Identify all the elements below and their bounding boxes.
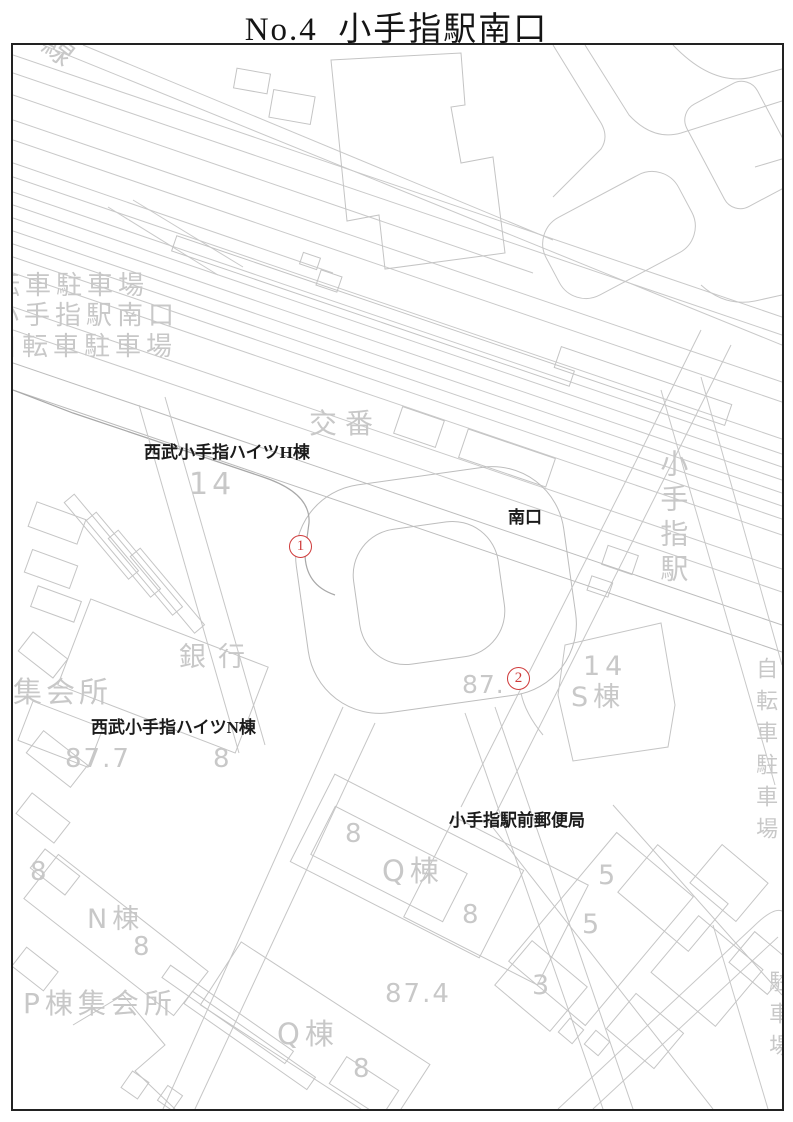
map-label-gray: 集会所 (13, 677, 112, 707)
map-label-gray: 87.7 (65, 746, 131, 773)
map-label-gray: 自転車駐車場 (11, 334, 177, 361)
marker-circle-1: 1 (289, 535, 312, 558)
map-label-gray: 14 (189, 469, 235, 501)
map-label-gray: 3 (532, 972, 549, 1000)
map-label-gray: S棟 (571, 684, 625, 712)
map-label-gray: 8 (353, 1056, 370, 1083)
map-label-gray: 87.4 (385, 981, 451, 1008)
map-label-gray: 8 (30, 859, 47, 886)
map-label-gray: 14 (583, 653, 627, 681)
map-label-gray: 87. (462, 672, 505, 698)
page: { "title": "No.4 小手指駅南口", "colors": { "l… (0, 0, 793, 1122)
map-label-gray: 5 (598, 862, 615, 890)
map-label-vertical: 小手指駅 (658, 449, 687, 589)
map-label-black: 南口 (508, 509, 542, 527)
map-label-gray: 銀行 (179, 644, 257, 672)
map-label-gray: N棟 (87, 906, 144, 934)
map-label-gray: 8 (133, 934, 150, 961)
map-label-gray: 5 (582, 911, 599, 939)
map-label-vertical: 自転車駐車場 (753, 657, 776, 849)
map-label-gray: 交番 (309, 409, 381, 438)
map-label-gray: Q棟 (382, 856, 444, 886)
map-label-black: 西武小手指ハイツH棟 (144, 444, 310, 462)
marker-circle-2: 2 (507, 667, 530, 690)
map-label-black: 西武小手指ハイツN棟 (91, 719, 256, 737)
map-label-gray: 8 (213, 746, 230, 773)
map-label-gray: 8 (462, 902, 479, 929)
map-label-gray: P棟集会所 (23, 989, 177, 1018)
map-label-black: 小手指駅前郵便局 (449, 812, 585, 830)
map-label-vertical: 駐車場 (766, 970, 784, 1066)
map-label-gray: 8 (345, 821, 362, 848)
map-label-gray: 自転車駐車場 (11, 273, 149, 300)
map-label-gray: 小手指駅南口 (11, 303, 179, 330)
map-canvas: 西武小手指ハイツH棟南口西武小手指ハイツN棟小手指駅前郵便局自転車駐車場小手指駅… (11, 43, 784, 1111)
map-label-gray: Q棟 (277, 1019, 339, 1049)
